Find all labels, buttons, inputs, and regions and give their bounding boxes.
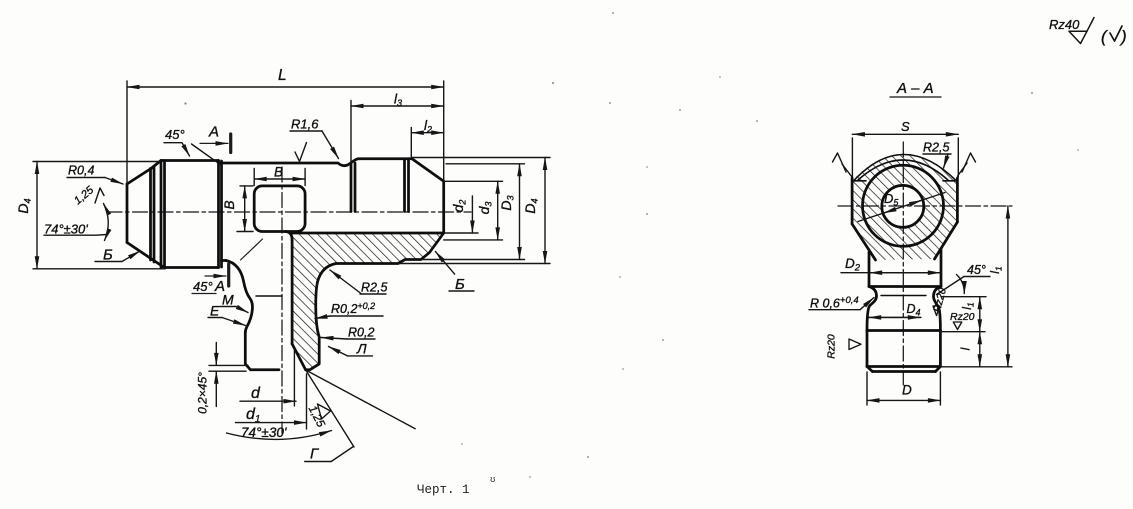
svg-text:): ) (1119, 27, 1127, 46)
svg-text:D4: D4 (907, 302, 921, 318)
svg-text:45°: 45° (967, 263, 986, 277)
svg-text:R0,4: R0,4 (68, 164, 94, 178)
svg-text:D4: D4 (15, 198, 33, 213)
svg-text:Rz20: Rz20 (950, 311, 975, 323)
svg-text:B: B (222, 200, 237, 209)
svg-text:R0,2+0,2: R0,2+0,2 (331, 301, 375, 316)
svg-text:D5: D5 (884, 191, 899, 208)
svg-text:d3: d3 (476, 202, 494, 215)
svg-text:d2: d2 (450, 200, 468, 213)
svg-text:l2: l2 (424, 118, 432, 135)
svg-text:А: А (208, 124, 219, 141)
svg-text:Черт. 1: Черт. 1 (417, 483, 470, 497)
svg-text:74°±30': 74°±30' (44, 222, 88, 237)
svg-text:Б: Б (103, 247, 113, 264)
svg-text:R2,5: R2,5 (361, 281, 387, 295)
svg-text:R1,6: R1,6 (291, 117, 319, 132)
svg-text:(: ( (1101, 27, 1109, 46)
svg-text:L: L (278, 67, 287, 84)
svg-text:ʊ: ʊ (490, 475, 495, 485)
svg-text:D3: D3 (498, 195, 516, 210)
svg-text:l3: l3 (394, 92, 402, 109)
svg-text:Rz20: Rz20 (826, 334, 838, 359)
svg-text:S: S (901, 119, 910, 134)
svg-text:l1: l1 (988, 266, 1004, 274)
svg-text:d1: d1 (246, 406, 260, 425)
svg-text:D: D (902, 383, 912, 398)
svg-text:А – А: А – А (896, 80, 934, 97)
svg-text:М: М (222, 292, 234, 308)
svg-text:0,2×45°: 0,2×45° (196, 372, 210, 414)
svg-text:Б: Б (455, 276, 465, 293)
svg-text:В: В (274, 165, 283, 180)
svg-text:D4: D4 (522, 198, 540, 213)
svg-text:R 0,6+0,4: R 0,6+0,4 (810, 295, 859, 311)
svg-text:R2,5: R2,5 (923, 141, 949, 155)
svg-text:Rz40: Rz40 (1049, 17, 1080, 32)
svg-text:l1: l1 (960, 302, 976, 310)
svg-text:d: d (251, 385, 261, 402)
svg-text:R0,2: R0,2 (348, 326, 374, 340)
svg-text:Л: Л (356, 341, 367, 357)
svg-text:45°: 45° (193, 279, 213, 294)
svg-text:Е: Е (210, 303, 220, 319)
svg-text:D2: D2 (845, 256, 861, 274)
svg-text:45°: 45° (165, 127, 185, 142)
svg-text:1,25: 1,25 (72, 184, 97, 208)
svg-text:l: l (959, 347, 973, 350)
svg-text:Г: Г (310, 446, 320, 463)
svg-text:74°±30': 74°±30' (241, 425, 287, 440)
